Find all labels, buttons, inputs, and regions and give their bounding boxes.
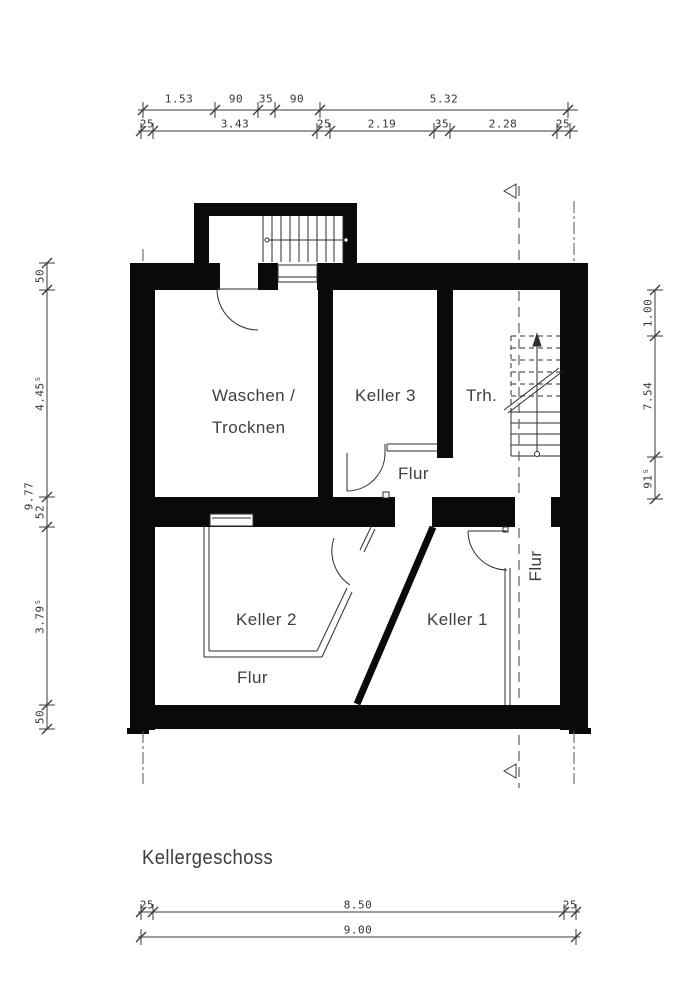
- room-label-waschen-line2: Trocknen: [212, 418, 285, 438]
- dim-label: 50: [34, 710, 47, 724]
- wall-bottom-footing-left: [127, 728, 149, 734]
- wall-middle-right: [432, 497, 515, 527]
- entrance-porch-wall-right: [343, 203, 357, 263]
- door-entry-waschen: [217, 289, 258, 330]
- dim-label: 91⁵: [642, 467, 655, 488]
- dim-label: 90: [290, 93, 304, 106]
- dim-label: 3.79⁵: [34, 598, 47, 634]
- flur-door-hinge-plate: [383, 492, 389, 498]
- dim-label: 35: [259, 93, 273, 106]
- dim-label: 2.28: [489, 118, 518, 131]
- wall-middle-stub: [551, 497, 560, 527]
- wall-keller3-trh: [437, 263, 453, 458]
- stair-start-marker: [535, 452, 540, 457]
- section-arrow-top: [504, 184, 516, 198]
- entrance-porch-wall-left: [194, 203, 209, 263]
- dim-label: 90: [229, 93, 243, 106]
- dim-label: 2.19: [368, 118, 397, 131]
- exterior-stairs: [263, 216, 348, 262]
- dim-label: 7.54: [642, 382, 655, 411]
- floor-plan-page: 1.53 90 35 90 5.32 25 3.43 25 2.19 35 2.…: [0, 0, 691, 1000]
- entry-threshold: [278, 265, 317, 282]
- section-arrow-bottom: [504, 764, 516, 778]
- interior-stairs-upper-dashed: [511, 336, 560, 408]
- dim-label: 25: [140, 118, 154, 131]
- stair-break-line: [508, 371, 563, 413]
- dim-label: 25: [556, 118, 570, 131]
- interior-stairs: [504, 334, 563, 457]
- stair-break-line-2: [504, 368, 559, 410]
- door-keller1: [468, 531, 507, 570]
- dim-label-total: 9.77: [23, 482, 36, 511]
- interior-walls: [155, 263, 560, 704]
- partitions: [204, 444, 510, 705]
- wall-waschen-keller3: [318, 263, 333, 497]
- wall-top-b: [258, 263, 278, 290]
- floor-plan-drawing: [0, 0, 691, 1000]
- door-keller2: [332, 527, 375, 585]
- entrance-porch-wall-top: [194, 203, 357, 216]
- exterior-walls: [127, 203, 591, 734]
- dim-label: 25: [140, 899, 154, 912]
- room-label-keller2: Keller 2: [236, 610, 297, 630]
- wall-diagonal: [357, 527, 433, 704]
- partition-keller1-flur: [505, 568, 510, 705]
- dim-label: 1.53: [165, 93, 194, 106]
- dim-label: 4.45⁵: [34, 375, 47, 411]
- dim-label: 5.32: [430, 93, 459, 106]
- room-label-flur-lower: Flur: [237, 668, 268, 688]
- dim-label: 25: [317, 118, 331, 131]
- wall-top-a: [130, 263, 220, 290]
- wall-bottom: [130, 705, 588, 729]
- room-label-keller1: Keller 1: [427, 610, 488, 630]
- partition-keller2: [204, 527, 352, 657]
- wall-left: [130, 263, 155, 730]
- dim-label: 35: [435, 118, 449, 131]
- wall-middle-left: [155, 497, 395, 527]
- keller2-wall-slot: [210, 514, 253, 526]
- wall-right: [560, 263, 588, 730]
- door-keller3: [347, 444, 385, 491]
- dim-label: 50: [34, 269, 47, 283]
- page-title: Kellergeschoss: [142, 847, 273, 870]
- room-label-flur-right: Flur: [526, 551, 546, 582]
- dim-label-total: 9.00: [344, 924, 373, 937]
- wall-bottom-footing-right: [569, 728, 591, 734]
- dim-label: 8.50: [344, 899, 373, 912]
- dim-label: 3.43: [221, 118, 250, 131]
- room-label-flur-upper: Flur: [398, 464, 429, 484]
- partition-keller3-flur: [387, 444, 437, 451]
- dim-label: 1.00: [642, 299, 655, 328]
- room-label-trh: Trh.: [466, 386, 497, 406]
- room-label-keller3: Keller 3: [355, 386, 416, 406]
- room-label-waschen-line1: Waschen /: [212, 386, 295, 406]
- dim-label: 25: [563, 899, 577, 912]
